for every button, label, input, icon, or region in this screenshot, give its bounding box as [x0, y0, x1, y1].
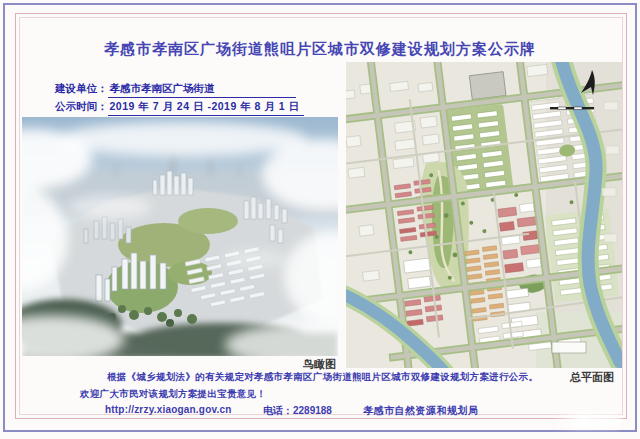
period-label: 公示时间： — [55, 100, 108, 112]
period-row: 公示时间：2019 年 7 月 24 日 -2019 年 8 月 1 日 — [55, 97, 304, 115]
page-title: 孝感市孝南区广场街道熊咀片区城市双修建设规划方案公示牌 — [0, 40, 640, 59]
footer-website: http://zrzy.xiaogan.gov.cn — [105, 404, 232, 415]
footer-agency: 孝感市自然资源和规划局 — [363, 404, 479, 418]
notice-text-line2: 欢迎广大市民对该规划方案提出宝贵意见！ — [80, 388, 266, 401]
notice-board: 孝感市孝南区广场街道熊咀片区城市双修建设规划方案公示牌 建设单位：孝感市孝南区广… — [0, 0, 640, 439]
footer-phone: 电话：2289188 — [263, 404, 332, 418]
watermark-smudge — [552, 413, 622, 429]
builder-row: 建设单位：孝感市孝南区广场街道 — [55, 79, 304, 97]
master-plan-graphic — [346, 62, 622, 368]
aerial-view-caption: 鸟瞰图 — [22, 357, 336, 372]
info-block: 建设单位：孝感市孝南区广场街道 公示时间：2019 年 7 月 24 日 -20… — [55, 79, 304, 115]
aerial-view-graphic — [22, 117, 338, 356]
period-value: 2019 年 7 月 24 日 -2019 年 8 月 1 日 — [108, 97, 304, 116]
notice-text-line1: 根据《城乡规划法》的有关规定对孝感市孝南区广场街道熊咀片区城市双修建设规划方案进… — [107, 371, 538, 384]
scale-bar — [550, 107, 594, 109]
master-plan-image — [346, 62, 622, 368]
builder-label: 建设单位： — [55, 82, 108, 94]
aerial-view-image — [22, 117, 338, 356]
builder-value: 孝感市孝南区广场街道 — [108, 79, 296, 98]
